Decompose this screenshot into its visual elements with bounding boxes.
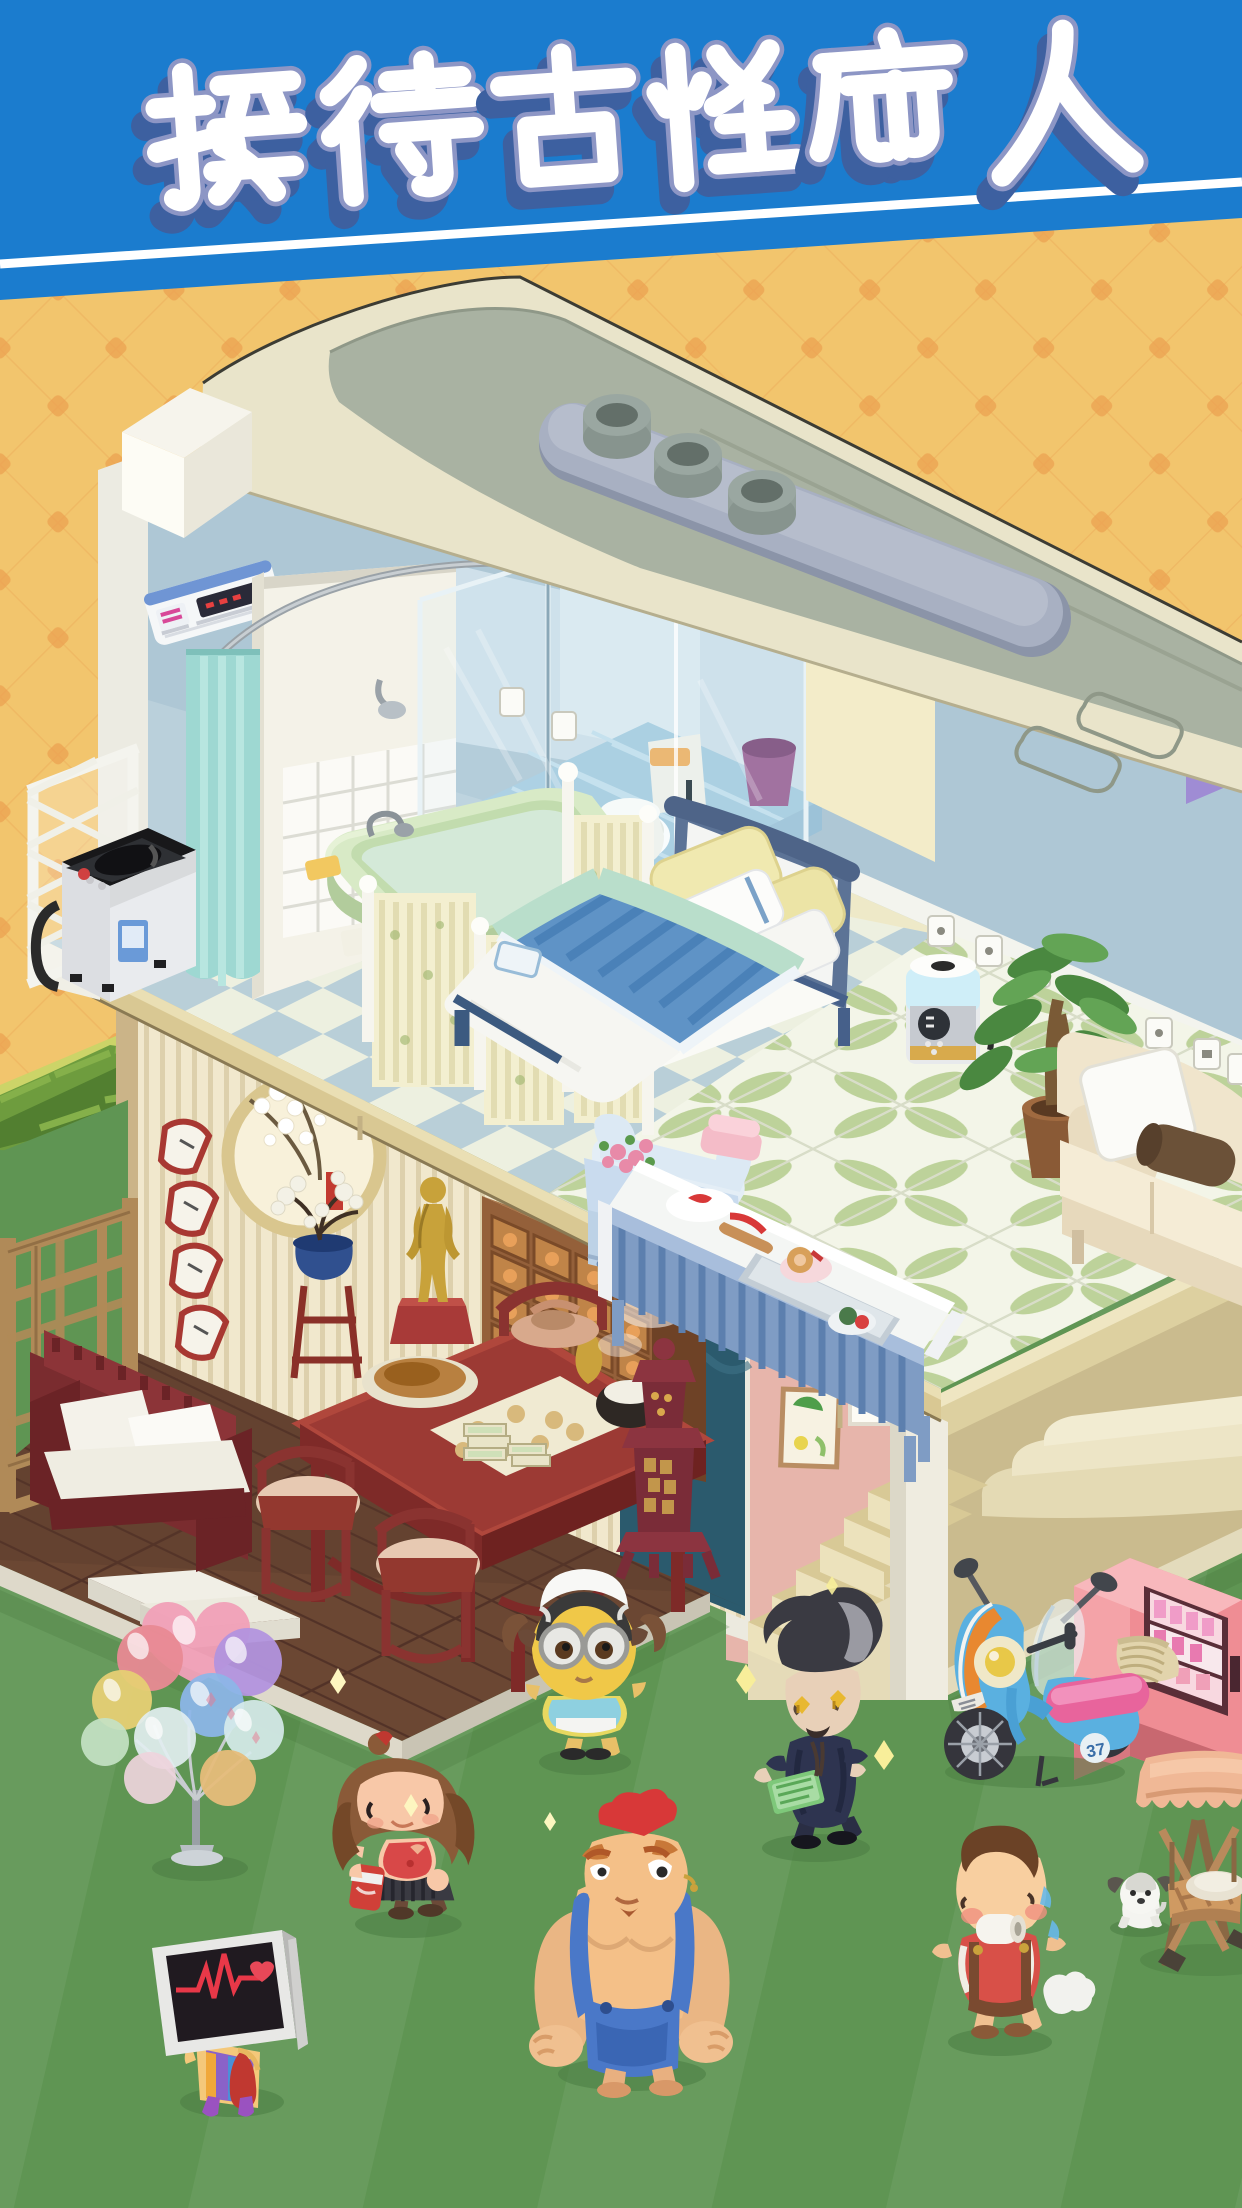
svg-text:37: 37 [1085, 1739, 1107, 1761]
